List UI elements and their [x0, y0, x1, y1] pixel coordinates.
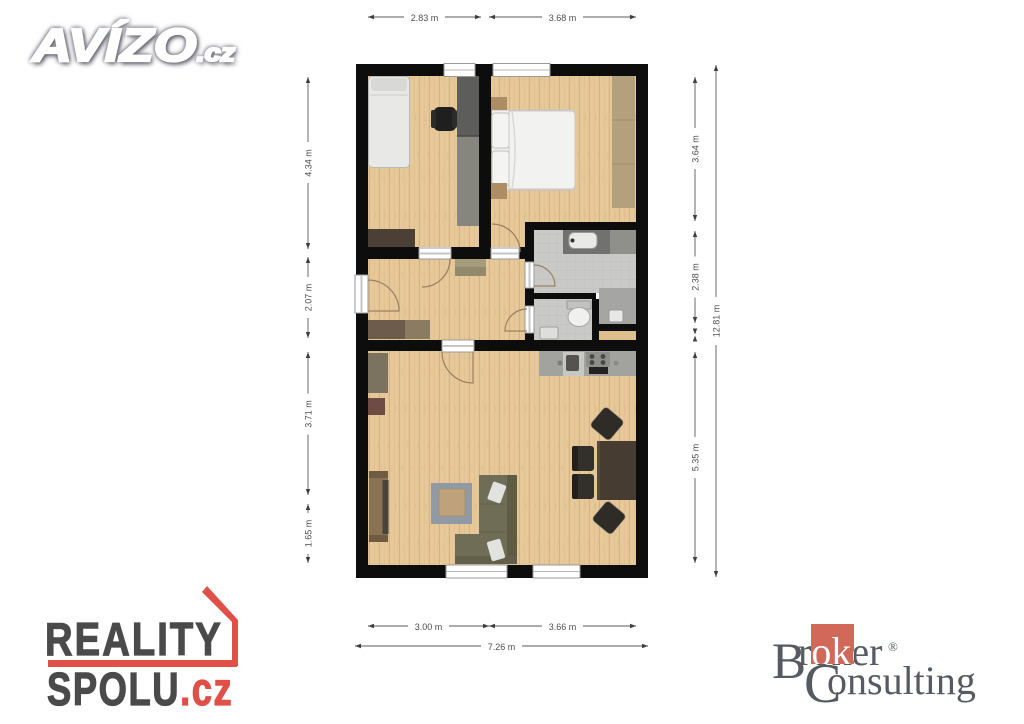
svg-text:3.66 m: 3.66 m	[549, 622, 577, 632]
svg-text:2.07 m: 2.07 m	[304, 284, 314, 312]
svg-text:7.26 m: 7.26 m	[488, 642, 516, 652]
svg-text:2.83 m: 2.83 m	[411, 13, 439, 23]
svg-text:5.35 m: 5.35 m	[691, 444, 701, 472]
svg-text:3.00 m: 3.00 m	[415, 622, 443, 632]
svg-text:3.68 m: 3.68 m	[549, 13, 577, 23]
svg-text:1.65 m: 1.65 m	[304, 520, 314, 548]
svg-text:4.34 m: 4.34 m	[304, 149, 314, 177]
svg-text:3.64 m: 3.64 m	[691, 135, 701, 163]
svg-text:2.38 m: 2.38 m	[691, 263, 701, 291]
svg-text:12.81 m: 12.81 m	[712, 305, 722, 338]
svg-text:3.71 m: 3.71 m	[304, 400, 314, 428]
